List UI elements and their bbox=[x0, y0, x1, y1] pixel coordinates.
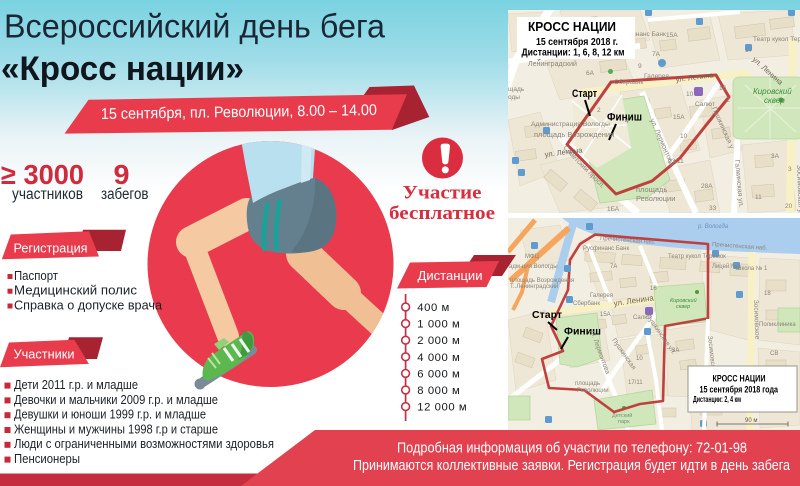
svg-text:площадь Возрождения: площадь Возрождения bbox=[534, 130, 614, 139]
svg-text:2 000 м: 2 000 м bbox=[417, 335, 460, 347]
svg-text:15А: 15А bbox=[666, 32, 678, 39]
svg-text:400 м: 400 м bbox=[417, 302, 450, 314]
svg-text:Ленинградский: Ленинградский bbox=[528, 60, 577, 68]
svg-text:15А: 15А bbox=[673, 114, 685, 121]
svg-text:Медицинский полис: Медицинский полис bbox=[14, 284, 137, 298]
svg-text:Революции: Революции bbox=[577, 388, 609, 394]
svg-text:18: 18 bbox=[764, 291, 771, 297]
svg-text:Девушки и юноши 1999 г.р. и мл: Девушки и юноши 1999 г.р. и младше bbox=[14, 408, 206, 422]
svg-text:Детский: Детский bbox=[612, 412, 632, 419]
svg-text:сквер: сквер bbox=[676, 304, 690, 310]
svg-text:бесплатное: бесплатное bbox=[389, 203, 495, 224]
svg-text:Театр кукол Теремок: Театр кукол Теремок bbox=[668, 254, 726, 260]
svg-text:10: 10 bbox=[680, 133, 688, 140]
svg-text:15 сентября 2018 года: 15 сентября 2018 года bbox=[700, 384, 779, 394]
svg-text:90 м: 90 м bbox=[745, 418, 757, 424]
svg-text:площадь Возрождения: площадь Возрождения bbox=[510, 278, 574, 284]
svg-text:Принимаются коллективные заявк: Принимаются коллективные заявки. Регистр… bbox=[353, 457, 791, 474]
svg-text:Старт: Старт bbox=[532, 309, 562, 321]
svg-text:Участие: Участие bbox=[403, 183, 482, 204]
svg-text:Дистанции: 1, 6, 8, 12 км: Дистанции: 1, 6, 8, 12 км bbox=[522, 47, 625, 59]
svg-text:участников: участников bbox=[12, 186, 83, 203]
svg-text:6 000 м: 6 000 м bbox=[417, 368, 460, 380]
svg-text:4: 4 bbox=[625, 118, 629, 125]
svg-text:р. Вологда: р. Вологда bbox=[697, 224, 729, 230]
svg-text:15А: 15А bbox=[600, 312, 611, 318]
svg-text:17: 17 bbox=[745, 47, 753, 54]
svg-text:Салют: Салют bbox=[695, 101, 715, 108]
svg-text:12 000 м: 12 000 м bbox=[417, 402, 467, 414]
svg-text:КРОСС НАЦИИ: КРОСС НАЦИИ bbox=[528, 19, 616, 34]
svg-text:Сбербанк: Сбербанк bbox=[614, 78, 643, 86]
svg-text:площадь: площадь bbox=[636, 185, 667, 194]
svg-text:Старт: Старт bbox=[572, 88, 597, 100]
svg-text:28А: 28А bbox=[701, 183, 713, 190]
svg-text:Паспорт: Паспорт bbox=[14, 269, 58, 283]
svg-text:10: 10 bbox=[636, 356, 643, 362]
svg-text:7А: 7А bbox=[652, 51, 661, 58]
svg-text:Русфинанс Банк: Русфинанс Банк bbox=[583, 246, 629, 252]
svg-text:Люди с ограниченными возможнос: Люди с ограниченными возможностями здоро… bbox=[14, 437, 274, 451]
svg-text:Т..Ленинградский: Т..Ленинградский bbox=[510, 283, 558, 290]
svg-text:«Кросс нации»: «Кросс нации» bbox=[1, 50, 244, 88]
svg-text:3А: 3А bbox=[771, 153, 780, 160]
svg-text:Поликлиника: Поликлиника bbox=[759, 322, 796, 328]
svg-text:КРОСС НАЦИИ: КРОСС НАЦИИ bbox=[713, 374, 766, 384]
svg-text:Кировский: Кировский bbox=[670, 297, 697, 304]
svg-text:8 000 м: 8 000 м bbox=[417, 385, 460, 397]
svg-text:1 000 м: 1 000 м bbox=[417, 319, 460, 331]
svg-text:щадь: щадь bbox=[508, 86, 525, 93]
svg-text:Женщины и мужчины 1998 г.р и с: Женщины и мужчины 1998 г.р и старше bbox=[14, 422, 218, 436]
svg-text:оды: оды bbox=[508, 94, 520, 101]
svg-text:10: 10 bbox=[686, 91, 694, 98]
svg-text:20: 20 bbox=[785, 203, 793, 210]
svg-text:7А: 7А bbox=[610, 264, 617, 270]
svg-text:Зосимовское: Зосимовское bbox=[752, 300, 760, 340]
svg-text:Справка о допуске врача: Справка о допуске врача bbox=[14, 299, 162, 313]
svg-text:6А: 6А bbox=[586, 70, 595, 77]
svg-text:3: 3 bbox=[788, 166, 792, 173]
svg-text:Пенсионеры: Пенсионеры bbox=[14, 452, 80, 466]
svg-text:17/11: 17/11 bbox=[628, 380, 643, 386]
svg-text:Лицей №1: Лицей №1 bbox=[712, 263, 741, 270]
svg-text:Школа № 1: Школа № 1 bbox=[736, 265, 768, 272]
svg-text:Сбербанк: Сбербанк bbox=[573, 301, 600, 307]
svg-text:Подробная информация об участи: Подробная информация об участии по телеф… bbox=[397, 440, 747, 457]
svg-text:33: 33 bbox=[709, 205, 717, 212]
svg-text:9: 9 bbox=[638, 63, 642, 70]
svg-text:Дети 2011 г.р. и младше: Дети 2011 г.р. и младше bbox=[14, 378, 138, 392]
svg-text:сквер: сквер bbox=[764, 96, 785, 105]
svg-text:1БА: 1БА bbox=[607, 206, 620, 213]
svg-text:16: 16 bbox=[719, 85, 727, 92]
svg-text:площадь: площадь bbox=[575, 381, 600, 387]
svg-text:Галерея: Галерея bbox=[644, 73, 669, 80]
svg-text:забегов: забегов bbox=[101, 186, 149, 203]
svg-text:Кировский: Кировский bbox=[753, 87, 792, 96]
svg-text:Администрация Вологды: Администрация Вологды bbox=[531, 121, 610, 128]
svg-text:парк: парк bbox=[618, 419, 630, 425]
svg-text:Галерея: Галерея bbox=[590, 293, 613, 299]
svg-text:Театр кукол Тере: Театр кукол Тере bbox=[753, 36, 800, 43]
svg-text:Всероссийский день бега: Всероссийский день бега bbox=[4, 8, 386, 45]
svg-text:СВ: СВ bbox=[770, 351, 778, 357]
svg-text:16: 16 bbox=[650, 286, 657, 292]
svg-text:Регистрация: Регистрация bbox=[14, 241, 88, 256]
svg-text:11: 11 bbox=[755, 194, 762, 201]
svg-text:2: 2 bbox=[597, 107, 601, 114]
svg-text:Участники: Участники bbox=[14, 347, 75, 362]
svg-text:4 000 м: 4 000 м bbox=[417, 352, 460, 364]
svg-text:МФЦ: МФЦ bbox=[525, 254, 539, 260]
svg-text:Девочки и мальчики 2009 г.р. и: Девочки и мальчики 2009 г.р. и младше bbox=[14, 393, 218, 407]
svg-text:адм-ция Вологды: адм-ция Вологды bbox=[509, 264, 558, 270]
svg-text:Дистанции: 2, 4 км: Дистанции: 2, 4 км bbox=[693, 395, 741, 404]
svg-text:Революции: Революции bbox=[636, 194, 675, 203]
svg-text:2: 2 bbox=[726, 97, 730, 104]
svg-text:Дистанции: Дистанции bbox=[418, 268, 483, 283]
